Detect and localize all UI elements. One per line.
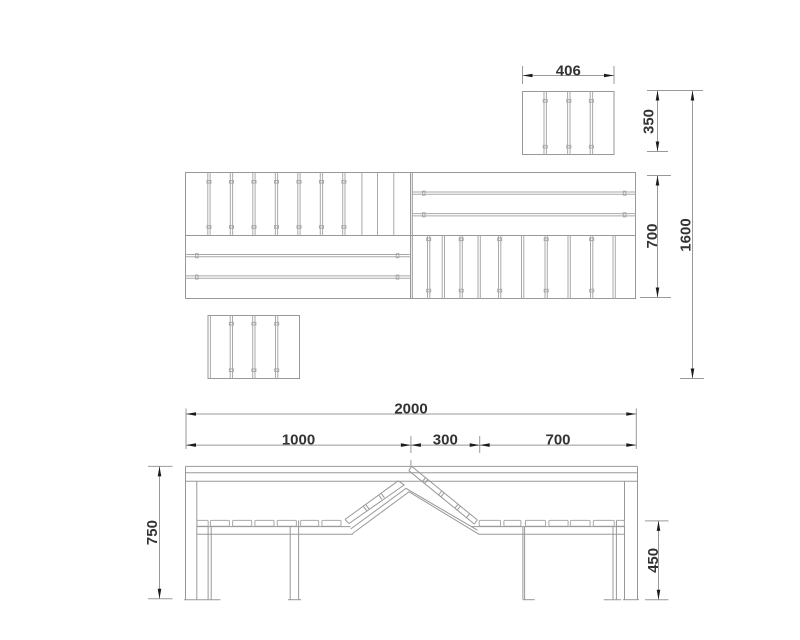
svg-text:300: 300: [433, 432, 458, 449]
svg-text:1600: 1600: [678, 218, 695, 251]
svg-text:700: 700: [644, 223, 661, 248]
svg-text:350: 350: [641, 109, 658, 134]
svg-text:450: 450: [645, 548, 662, 573]
svg-text:2000: 2000: [394, 401, 427, 418]
svg-text:1000: 1000: [282, 432, 315, 449]
svg-text:750: 750: [144, 520, 161, 545]
svg-text:700: 700: [545, 432, 570, 449]
svg-text:406: 406: [556, 63, 581, 80]
